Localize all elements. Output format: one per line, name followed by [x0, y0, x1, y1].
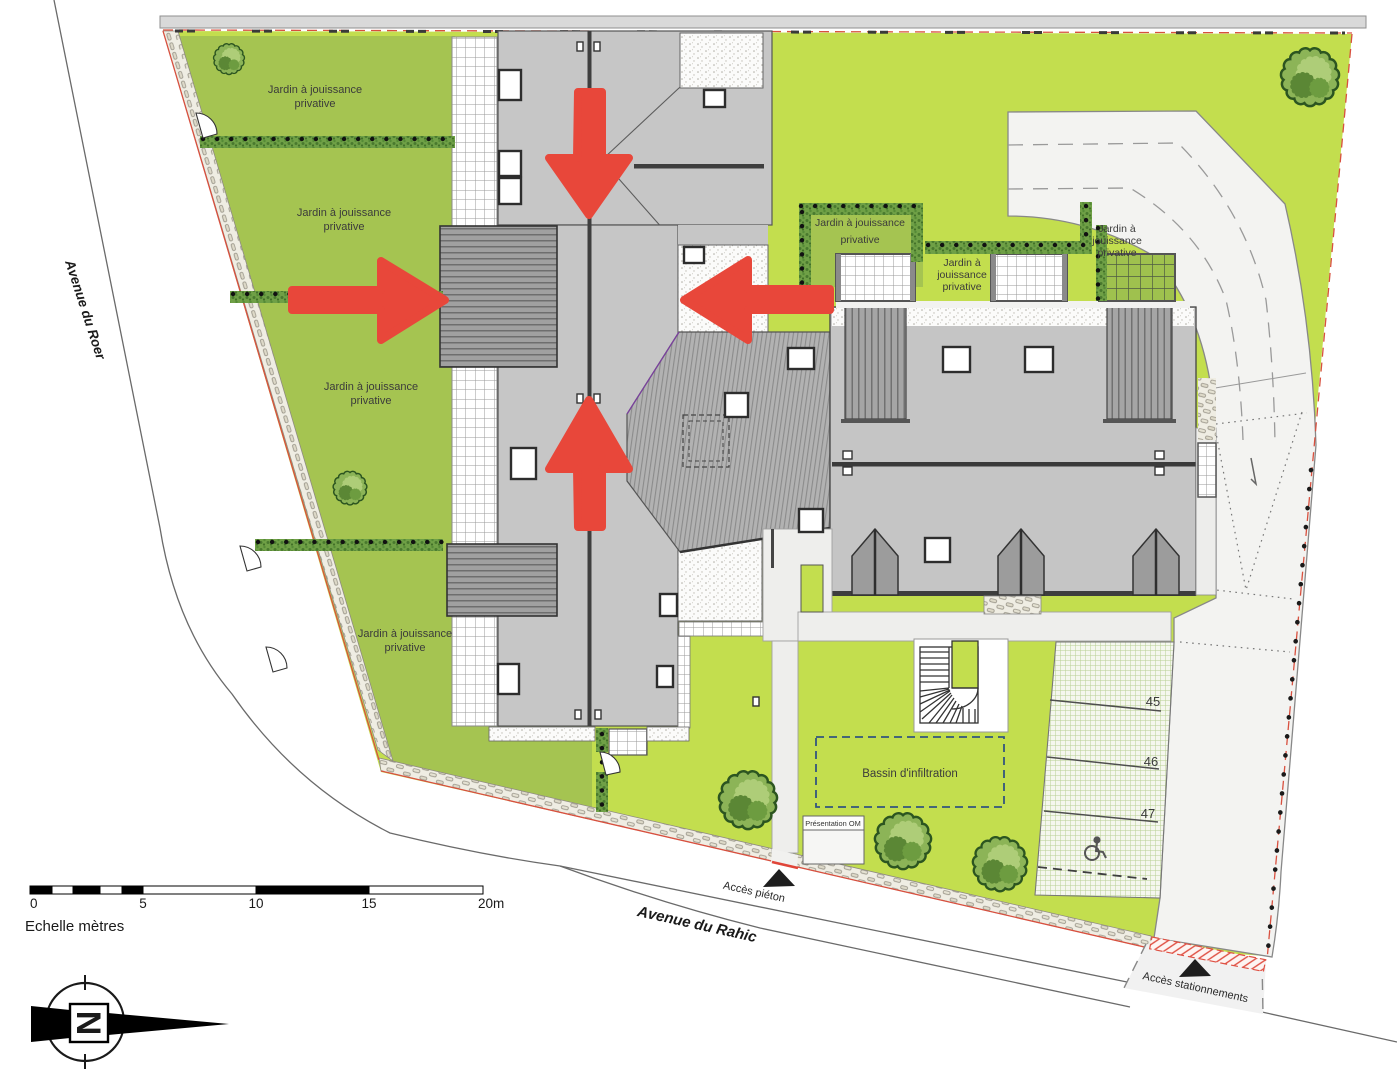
svg-text:privative: privative [840, 234, 879, 246]
svg-text:Jardin à: Jardin à [943, 257, 981, 269]
svg-text:N: N [69, 1011, 107, 1036]
svg-text:jouissance: jouissance [1091, 235, 1142, 247]
svg-text:privative: privative [351, 395, 392, 407]
svg-text:privative: privative [942, 281, 981, 293]
svg-text:Jardin à jouissance: Jardin à jouissance [358, 628, 452, 640]
svg-text:Présentation OM: Présentation OM [805, 819, 860, 828]
svg-text:Bassin d'infiltration: Bassin d'infiltration [862, 768, 958, 780]
svg-text:0: 0 [30, 896, 38, 911]
svg-text:privative: privative [324, 221, 365, 233]
svg-text:45: 45 [1146, 694, 1160, 709]
svg-text:Jardin à jouissance: Jardin à jouissance [297, 207, 391, 219]
svg-text:5: 5 [139, 896, 147, 911]
svg-text:privative: privative [1097, 247, 1136, 259]
svg-text:Jardin à jouissance: Jardin à jouissance [268, 84, 362, 96]
svg-text:jouissance: jouissance [936, 269, 987, 281]
svg-text:20m: 20m [478, 896, 504, 911]
svg-text:15: 15 [361, 896, 376, 911]
svg-text:47: 47 [1141, 806, 1155, 821]
svg-text:Jardin à: Jardin à [1098, 223, 1136, 235]
svg-text:Jardin à jouissance: Jardin à jouissance [324, 381, 418, 393]
svg-text:10: 10 [248, 896, 263, 911]
svg-text:Echelle mètres: Echelle mètres [25, 918, 124, 935]
svg-text:privative: privative [295, 98, 336, 110]
svg-text:46: 46 [1144, 754, 1158, 769]
svg-text:Jardin à jouissance: Jardin à jouissance [815, 217, 905, 229]
svg-text:privative: privative [385, 642, 426, 654]
